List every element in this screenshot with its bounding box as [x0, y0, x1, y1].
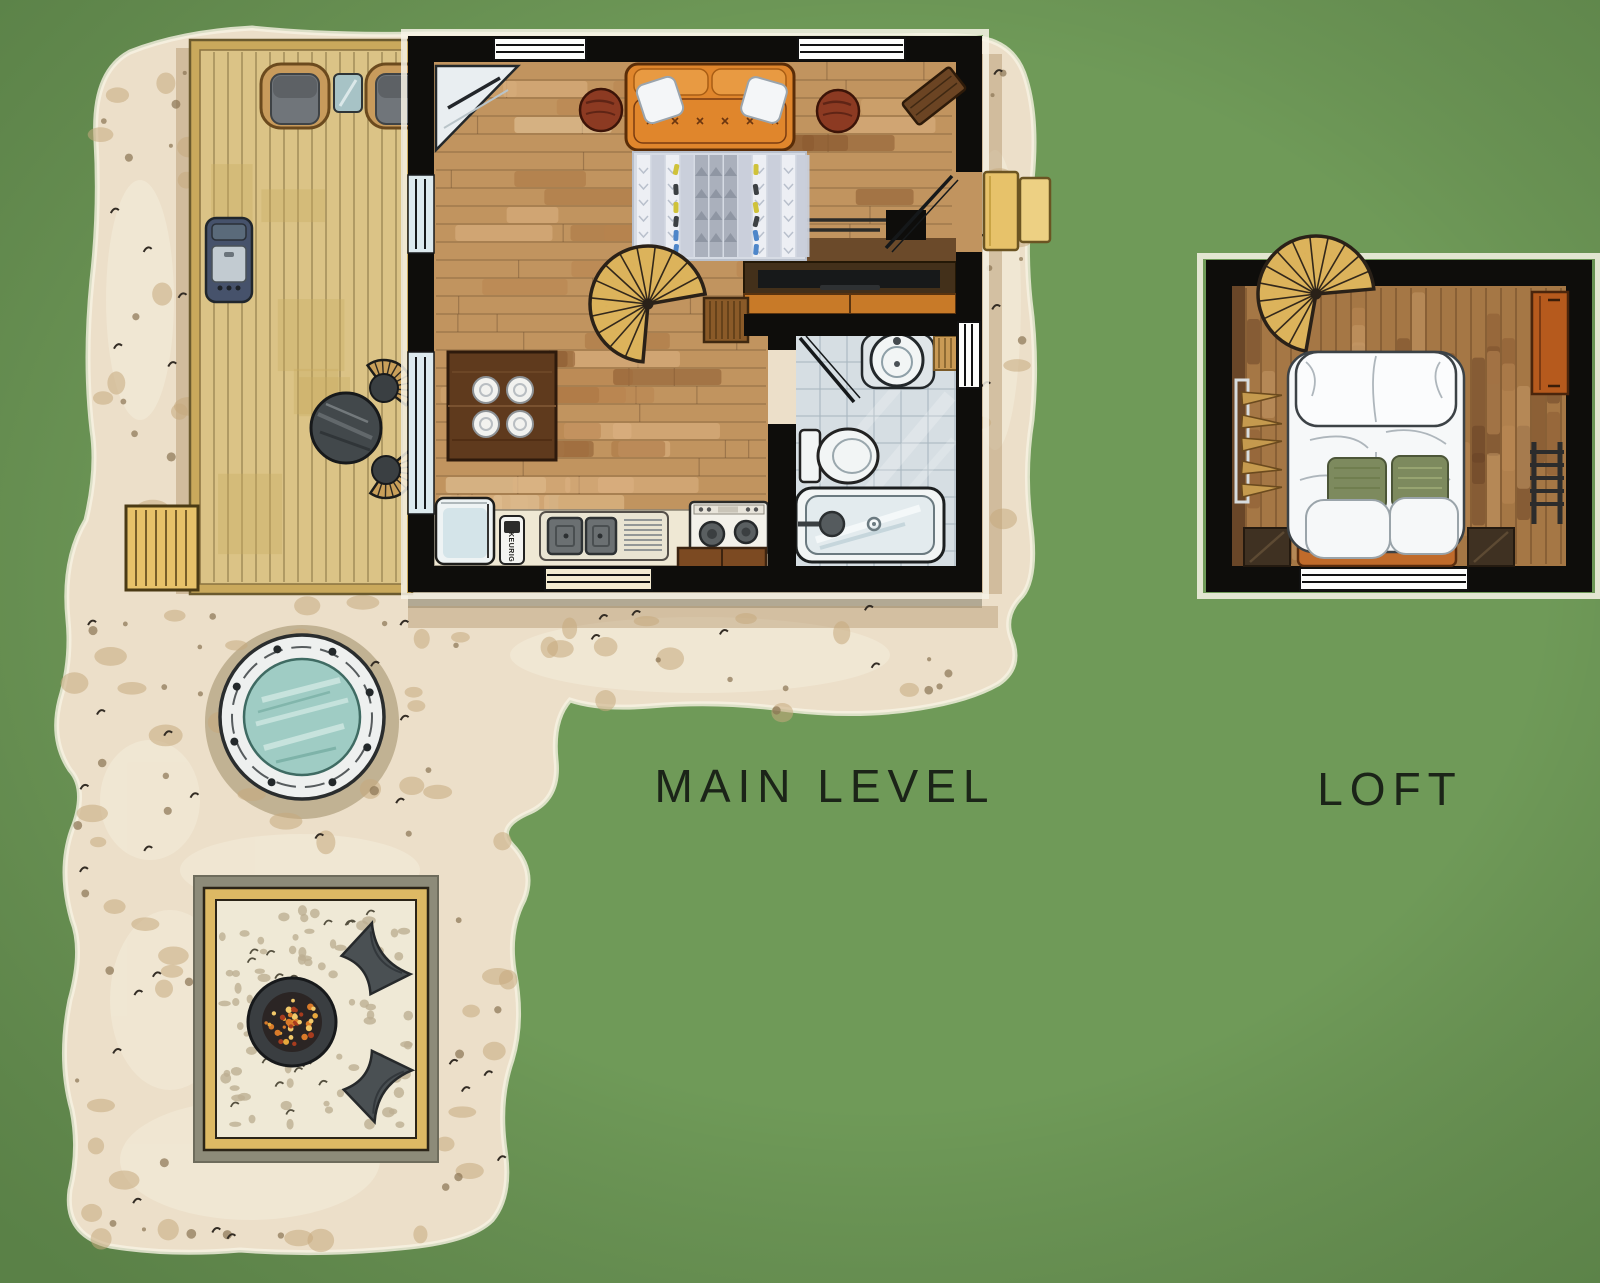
bathroom-wall-north	[744, 314, 982, 336]
bed	[1288, 352, 1464, 566]
window-south	[545, 568, 652, 590]
nightstand-right	[1468, 528, 1514, 566]
deck-dining-table	[311, 393, 381, 463]
foot-pillow-right	[1390, 498, 1458, 554]
bathtub	[796, 488, 944, 562]
area-rug	[633, 152, 810, 260]
kitchen-sink	[540, 512, 668, 560]
kitchen-table	[448, 352, 556, 460]
nightstand-left	[1244, 528, 1290, 566]
shadow-under-house-soft	[408, 606, 998, 628]
loft-dresser	[1532, 292, 1568, 394]
entry-door-opening	[956, 172, 982, 252]
bathroom-sink	[862, 334, 934, 388]
window-east-bathroom	[958, 322, 980, 388]
entry-steps	[984, 172, 1050, 250]
bath-mat	[934, 336, 958, 370]
label-loft: LOFT	[1317, 763, 1463, 815]
coffee-maker: KEURIG	[500, 516, 524, 564]
coffee-maker-label: KEURIG	[507, 532, 514, 562]
deck-side-table	[334, 74, 362, 112]
bathroom-wall-west-stub	[768, 336, 796, 350]
glass-door-west-lower	[408, 352, 434, 514]
floor-plan-illustration: KEURIG	[0, 0, 1600, 1283]
main-house: KEURIG	[404, 32, 1050, 596]
grill	[206, 218, 252, 302]
window-north-2	[798, 38, 905, 60]
deck-steps	[126, 506, 198, 590]
wall-south	[408, 566, 982, 592]
foot-pillow-left	[1306, 500, 1390, 558]
hot-tub-water	[244, 659, 360, 775]
fire-pit-patio	[194, 876, 438, 1162]
fire-pit	[248, 978, 336, 1066]
window-north-1	[494, 38, 586, 60]
drainboard	[624, 520, 662, 550]
toilet	[800, 429, 878, 483]
glass-door-west-upper	[408, 175, 434, 253]
loft	[1200, 236, 1598, 596]
loft-wall-east	[1566, 260, 1592, 592]
loft-window-south	[1300, 568, 1468, 590]
floor-plan-canvas: KEURIG	[0, 0, 1600, 1283]
bathroom	[796, 334, 958, 566]
label-main-level: MAIN LEVEL	[655, 760, 996, 812]
deck-chair-left	[261, 64, 329, 128]
stove	[690, 502, 768, 554]
side-table-right	[817, 90, 859, 132]
sofa	[626, 64, 794, 150]
hot-tub	[220, 635, 384, 799]
bathroom-wall-west	[768, 424, 796, 566]
side-table-left	[580, 89, 622, 131]
head-pillow	[1296, 352, 1456, 426]
loft-wall-west	[1206, 260, 1232, 592]
refrigerator	[436, 498, 494, 564]
slatted-cabinet	[704, 298, 748, 342]
